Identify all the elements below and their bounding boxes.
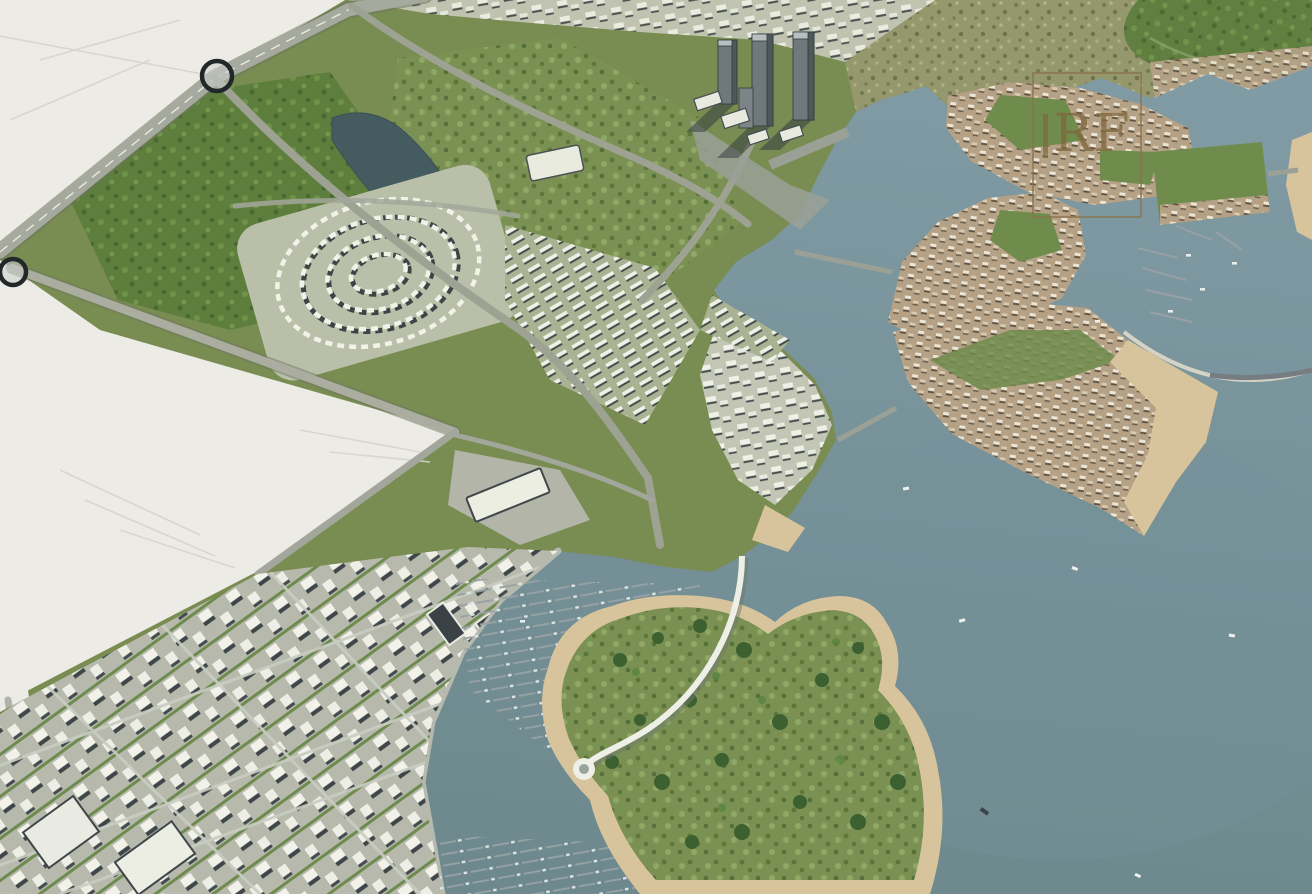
roundabout-ring-2 [0,259,26,285]
masterplan-render: RF [0,0,1312,894]
roundabout-ring-1 [202,61,232,91]
masterplan-svg [0,0,1312,894]
